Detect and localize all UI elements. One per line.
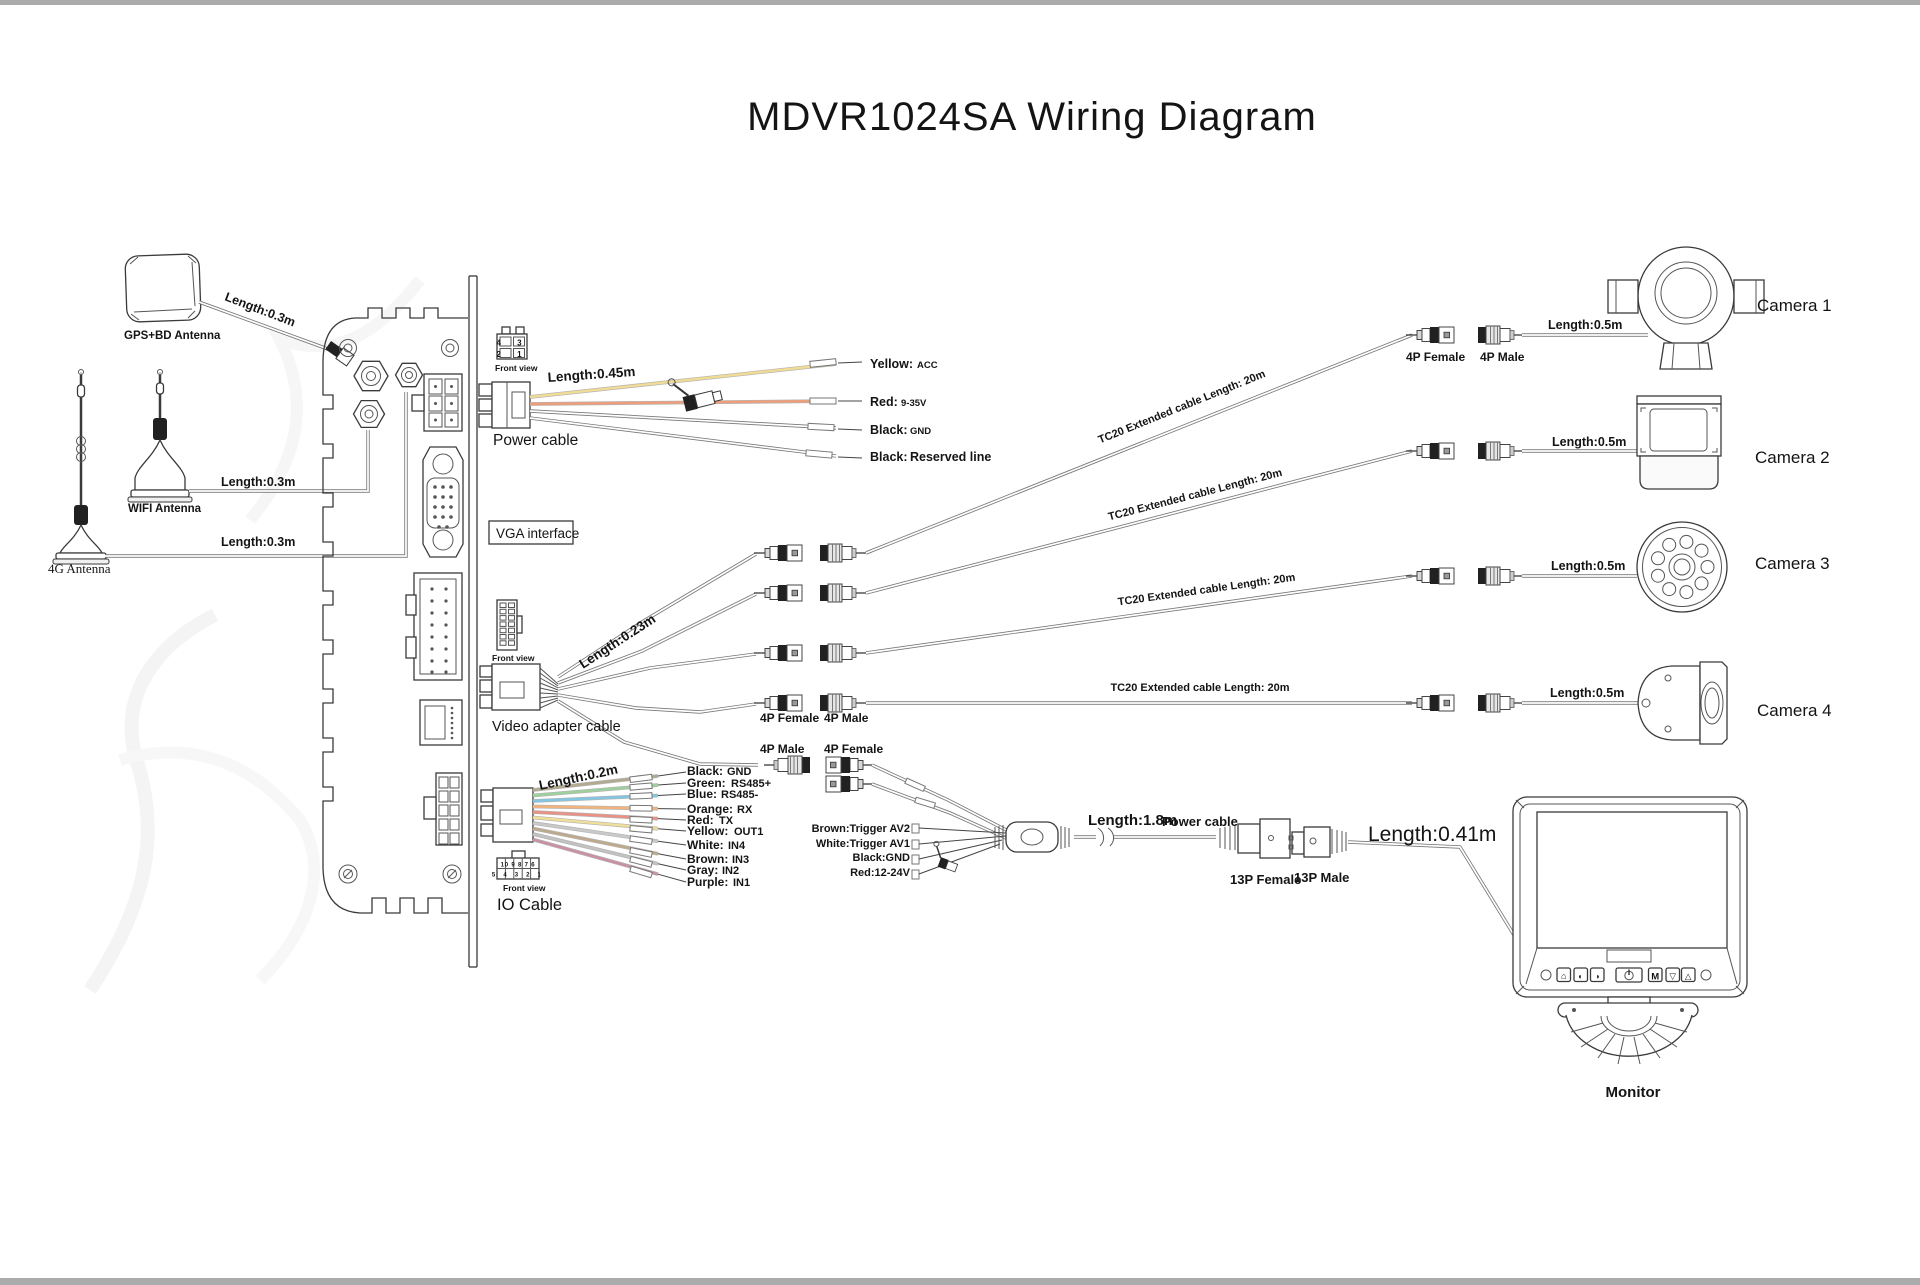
power-pins-top: 4 3 bbox=[496, 339, 528, 348]
camside-male-label: 4P Male bbox=[1480, 350, 1525, 364]
brightness-down-icon: ◐ bbox=[1578, 972, 1583, 981]
trigger-label-gnd: Black:GND bbox=[853, 852, 911, 864]
fuse-holder bbox=[667, 368, 723, 414]
device-4p-female-label: 4P Female bbox=[760, 711, 819, 725]
io-label-blue: Blue: bbox=[687, 787, 717, 801]
camera-4-label: Camera 4 bbox=[1757, 701, 1832, 720]
page-bottom-border bbox=[0, 1278, 1920, 1285]
power-wire-label-yellow: Yellow: bbox=[870, 357, 913, 371]
wifi-antenna-length: Length:0.3m bbox=[221, 475, 295, 489]
diagram-canvas: MDVR1024SA Wiring Diagram GPS+BD Antenna… bbox=[0, 0, 1920, 1285]
plug-4p-male-1 bbox=[820, 544, 866, 562]
device-4p-male-label: 4P Male bbox=[824, 711, 869, 725]
io-cable-label: IO Cable bbox=[497, 896, 562, 914]
power-connector bbox=[479, 382, 530, 428]
panel-aux-port bbox=[420, 700, 462, 745]
tc20-cables bbox=[866, 335, 1412, 703]
power-wire-signal-gnd: GND bbox=[910, 426, 931, 437]
monitor-plug-4p-male bbox=[764, 756, 810, 774]
gps-antenna-label: GPS+BD Antenna bbox=[124, 330, 221, 342]
io-label-purple: Purple: bbox=[687, 875, 728, 889]
io-signal-in1: IN1 bbox=[733, 877, 750, 889]
camera-2-figure bbox=[1637, 396, 1721, 489]
cam-plug-female-4 bbox=[1406, 695, 1454, 711]
trigger-fuse bbox=[927, 841, 963, 873]
io-signal-out1: OUT1 bbox=[734, 826, 763, 838]
panel-io-port bbox=[424, 773, 462, 845]
power-wire-label-black2: Black: bbox=[870, 450, 908, 464]
io-signal-rx: RX bbox=[737, 804, 753, 816]
power-wire-label-red: Red: bbox=[870, 395, 898, 409]
lte-antenna-label: 4G Antenna bbox=[48, 561, 111, 576]
trigger-label-av2: Brown:Trigger AV2 bbox=[812, 823, 910, 835]
tc20-label-1: TC20 Extended cable Length: 20m bbox=[1097, 368, 1268, 446]
power-wire-signal-reserved: Reserved line bbox=[910, 450, 991, 464]
wiring-diagram-page: MDVR1024SA Wiring Diagram GPS+BD Antenna… bbox=[0, 0, 1920, 1285]
video-adapter-connector bbox=[480, 664, 558, 710]
io-signal-gnd: GND bbox=[727, 766, 752, 778]
home-icon: ⌂ bbox=[1561, 971, 1566, 981]
up-button-glyph: △ bbox=[1685, 971, 1692, 981]
vga-interface-label: VGA interface bbox=[496, 526, 579, 541]
monitor-stand bbox=[1558, 997, 1698, 1064]
cam-plug-female-1 bbox=[1406, 327, 1454, 343]
io-label-white: White: bbox=[687, 838, 724, 852]
junction-molding bbox=[995, 822, 1069, 852]
pigtail-length-2: Length:0.5m bbox=[1552, 435, 1626, 449]
sma-jack-gps bbox=[354, 361, 388, 390]
cam-plug-male-2 bbox=[1478, 442, 1524, 460]
camera-side-plugs bbox=[1406, 326, 1648, 712]
menu-button-glyph: M bbox=[1651, 971, 1659, 982]
power-cable-1-8m bbox=[1074, 827, 1216, 847]
monitor-buttons: ⌂ ◐ ◑ M ▽ △ bbox=[1541, 968, 1711, 982]
power-front-view-label: Front view bbox=[495, 363, 538, 373]
power-wire-red bbox=[530, 401, 836, 404]
power-wire-signal-935v: 9-35V bbox=[901, 398, 927, 409]
camera-link-plugs-device bbox=[754, 544, 866, 712]
tc20-label-4: TC20 Extended cable Length: 20m bbox=[1110, 682, 1289, 694]
plug-4p-male-3 bbox=[820, 644, 866, 662]
camera-4-figure bbox=[1638, 662, 1727, 744]
trigger-label-av1: White:Trigger AV1 bbox=[816, 838, 910, 850]
mdvr-rear-panel bbox=[323, 276, 477, 967]
io-label-yellow: Yellow: bbox=[687, 824, 728, 838]
panel-power-socket bbox=[412, 374, 462, 431]
trigger-wires bbox=[912, 824, 1006, 879]
panel-video-port bbox=[406, 573, 462, 680]
monitor-4p-female-label: 4P Female bbox=[824, 742, 883, 756]
trigger-label-12-24v: Red:12-24V bbox=[850, 867, 911, 879]
page-top-border bbox=[0, 0, 1920, 5]
plug-4p-male-4 bbox=[820, 694, 866, 712]
io-connector bbox=[481, 788, 533, 842]
pigtail-length-1: Length:0.5m bbox=[1548, 318, 1622, 332]
power-pins-bottom: 2 1 bbox=[496, 350, 528, 359]
power-cable-label: Power cable bbox=[493, 432, 578, 449]
cam-plug-male-1 bbox=[1478, 326, 1524, 344]
video-adapter-label: Video adapter cable bbox=[492, 719, 621, 735]
plug-4p-male-2 bbox=[820, 584, 866, 602]
tc20-label-3: TC20 Extended cable Length: 20m bbox=[1117, 572, 1296, 609]
video-adapter-length: Length:0.23m bbox=[576, 611, 658, 671]
page-title: MDVR1024SA Wiring Diagram bbox=[747, 95, 1317, 139]
brightness-up-icon: ◑ bbox=[1595, 972, 1600, 981]
camera-3-label: Camera 3 bbox=[1755, 554, 1830, 573]
panel-vga-port bbox=[423, 447, 463, 557]
plug-4p-female-3 bbox=[754, 645, 802, 661]
cam-plug-female-2 bbox=[1406, 443, 1454, 459]
monitor-4p-male-label: 4P Male bbox=[760, 742, 805, 756]
io-signal-rs485m: RS485- bbox=[721, 789, 759, 801]
cam-plug-female-3 bbox=[1406, 568, 1454, 584]
io-cable-group: 10 9 8 7 6 5 4 3 2 1 bbox=[481, 772, 686, 882]
cam-plug-male-4 bbox=[1478, 694, 1524, 712]
cam-plug-male-3 bbox=[1478, 567, 1524, 585]
monitor-plug-4p-female-2 bbox=[826, 776, 874, 792]
monitor-figure: ⌂ ◐ ◑ M ▽ △ bbox=[1513, 797, 1747, 1064]
power-front-view-icon: 4 3 2 1 bbox=[496, 327, 528, 359]
power-wire-signal-acc: ACC bbox=[917, 360, 938, 371]
plug-4p-female-4 bbox=[754, 695, 802, 711]
plug-13p-male-label: 13P Male bbox=[1294, 870, 1349, 885]
monitor-cable-length: Length:0.41m bbox=[1368, 823, 1496, 846]
video-front-view-label: Front view bbox=[492, 653, 535, 663]
pigtail-length-4: Length:0.5m bbox=[1550, 686, 1624, 700]
plug-4p-female-2 bbox=[754, 585, 802, 601]
io-front-view-icon: 10 9 8 7 6 5 4 3 2 1 bbox=[492, 851, 544, 879]
monitor-label: Monitor bbox=[1606, 1084, 1661, 1101]
sma-jack-wifi bbox=[354, 401, 385, 428]
pigtail-length-3: Length:0.5m bbox=[1551, 559, 1625, 573]
sma-jack-lte bbox=[396, 363, 423, 386]
io-signal-in4: IN4 bbox=[728, 840, 746, 852]
monitor-plug-4p-female-1 bbox=[826, 757, 874, 773]
tc20-label-2: TC20 Extended cable Length: 20m bbox=[1107, 467, 1284, 524]
lte-antenna-length: Length:0.3m bbox=[221, 535, 295, 549]
plug-4p-female-1 bbox=[754, 545, 802, 561]
camside-female-label: 4P Female bbox=[1406, 350, 1465, 364]
down-button-glyph: ▽ bbox=[1669, 971, 1676, 981]
power-cable-1-8m-label: Power cable bbox=[1162, 814, 1238, 829]
io-front-view-label: Front view bbox=[503, 883, 546, 893]
plug-13p-male bbox=[1289, 827, 1346, 857]
camera-1-figure bbox=[1608, 247, 1764, 369]
camera-2-label: Camera 2 bbox=[1755, 448, 1830, 467]
plug-13p-female-label: 13P Female bbox=[1230, 872, 1301, 887]
camera-3-figure bbox=[1637, 522, 1727, 612]
wifi-antenna-label: WIFI Antenna bbox=[128, 503, 202, 515]
camera-1-label: Camera 1 bbox=[1757, 296, 1832, 315]
io-pins-top: 10 9 8 7 6 bbox=[501, 863, 536, 869]
io-pins-bottom: 5 4 3 2 1 bbox=[492, 873, 544, 879]
video-front-view-icon bbox=[497, 600, 522, 650]
power-cable-length: Length:0.45m bbox=[547, 364, 636, 385]
power-wire-label-black1: Black: bbox=[870, 423, 908, 437]
